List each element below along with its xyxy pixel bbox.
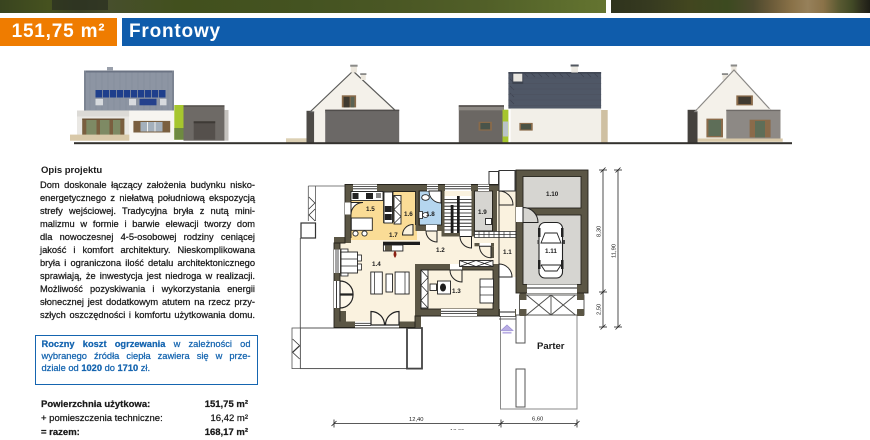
svg-text:6,60: 6,60 [532, 417, 543, 423]
svg-text:11,90: 11,90 [612, 244, 618, 258]
svg-text:12,40: 12,40 [409, 417, 424, 423]
svg-text:1.7: 1.7 [389, 232, 398, 239]
svg-text:1.2: 1.2 [436, 247, 445, 254]
svg-text:1.4: 1.4 [372, 261, 381, 268]
svg-text:1.9: 1.9 [478, 209, 487, 216]
svg-text:1.10: 1.10 [546, 191, 559, 198]
svg-text:2,50: 2,50 [597, 304, 603, 315]
svg-text:1.11: 1.11 [545, 248, 557, 255]
svg-text:8,30: 8,30 [597, 226, 603, 237]
svg-text:1.3: 1.3 [452, 288, 461, 295]
svg-text:Parter: Parter [537, 341, 565, 352]
svg-text:1.8: 1.8 [426, 211, 435, 218]
svg-text:1.6: 1.6 [404, 211, 413, 218]
svg-text:1.1: 1.1 [503, 249, 512, 256]
svg-text:1.5: 1.5 [366, 206, 375, 213]
